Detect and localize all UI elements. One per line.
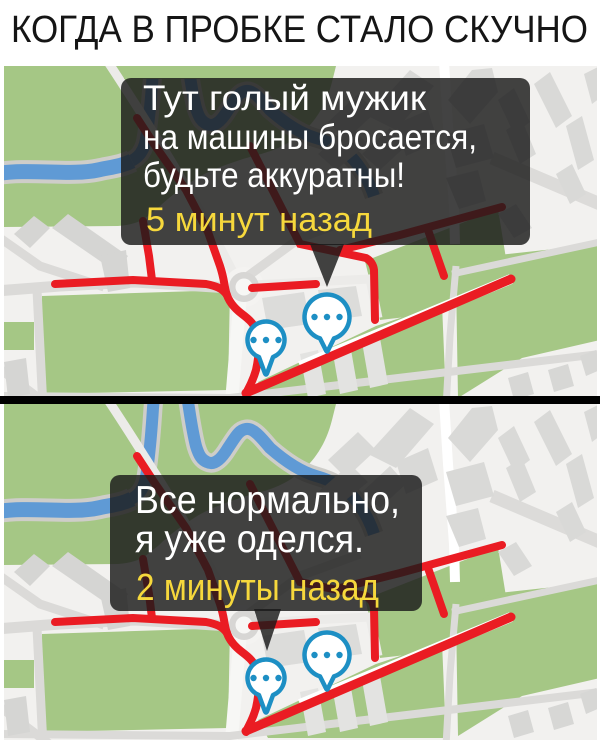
svg-text:5 минут назад: 5 минут назад (146, 201, 372, 239)
svg-text:я уже оделся.: я уже оделся. (135, 518, 364, 561)
svg-text:Все нормально,: Все нормально, (135, 479, 400, 522)
svg-text:2 минуты назад: 2 минуты назад (136, 567, 379, 609)
svg-text:будьте аккуратны!: будьте аккуратны! (143, 156, 405, 195)
svg-text:на машины бросается,: на машины бросается, (143, 118, 477, 157)
svg-text:Тут голый мужик: Тут голый мужик (143, 79, 427, 118)
svg-text:КОГДА В ПРОБКЕ СТАЛО СКУЧНО: КОГДА В ПРОБКЕ СТАЛО СКУЧНО (11, 9, 588, 51)
